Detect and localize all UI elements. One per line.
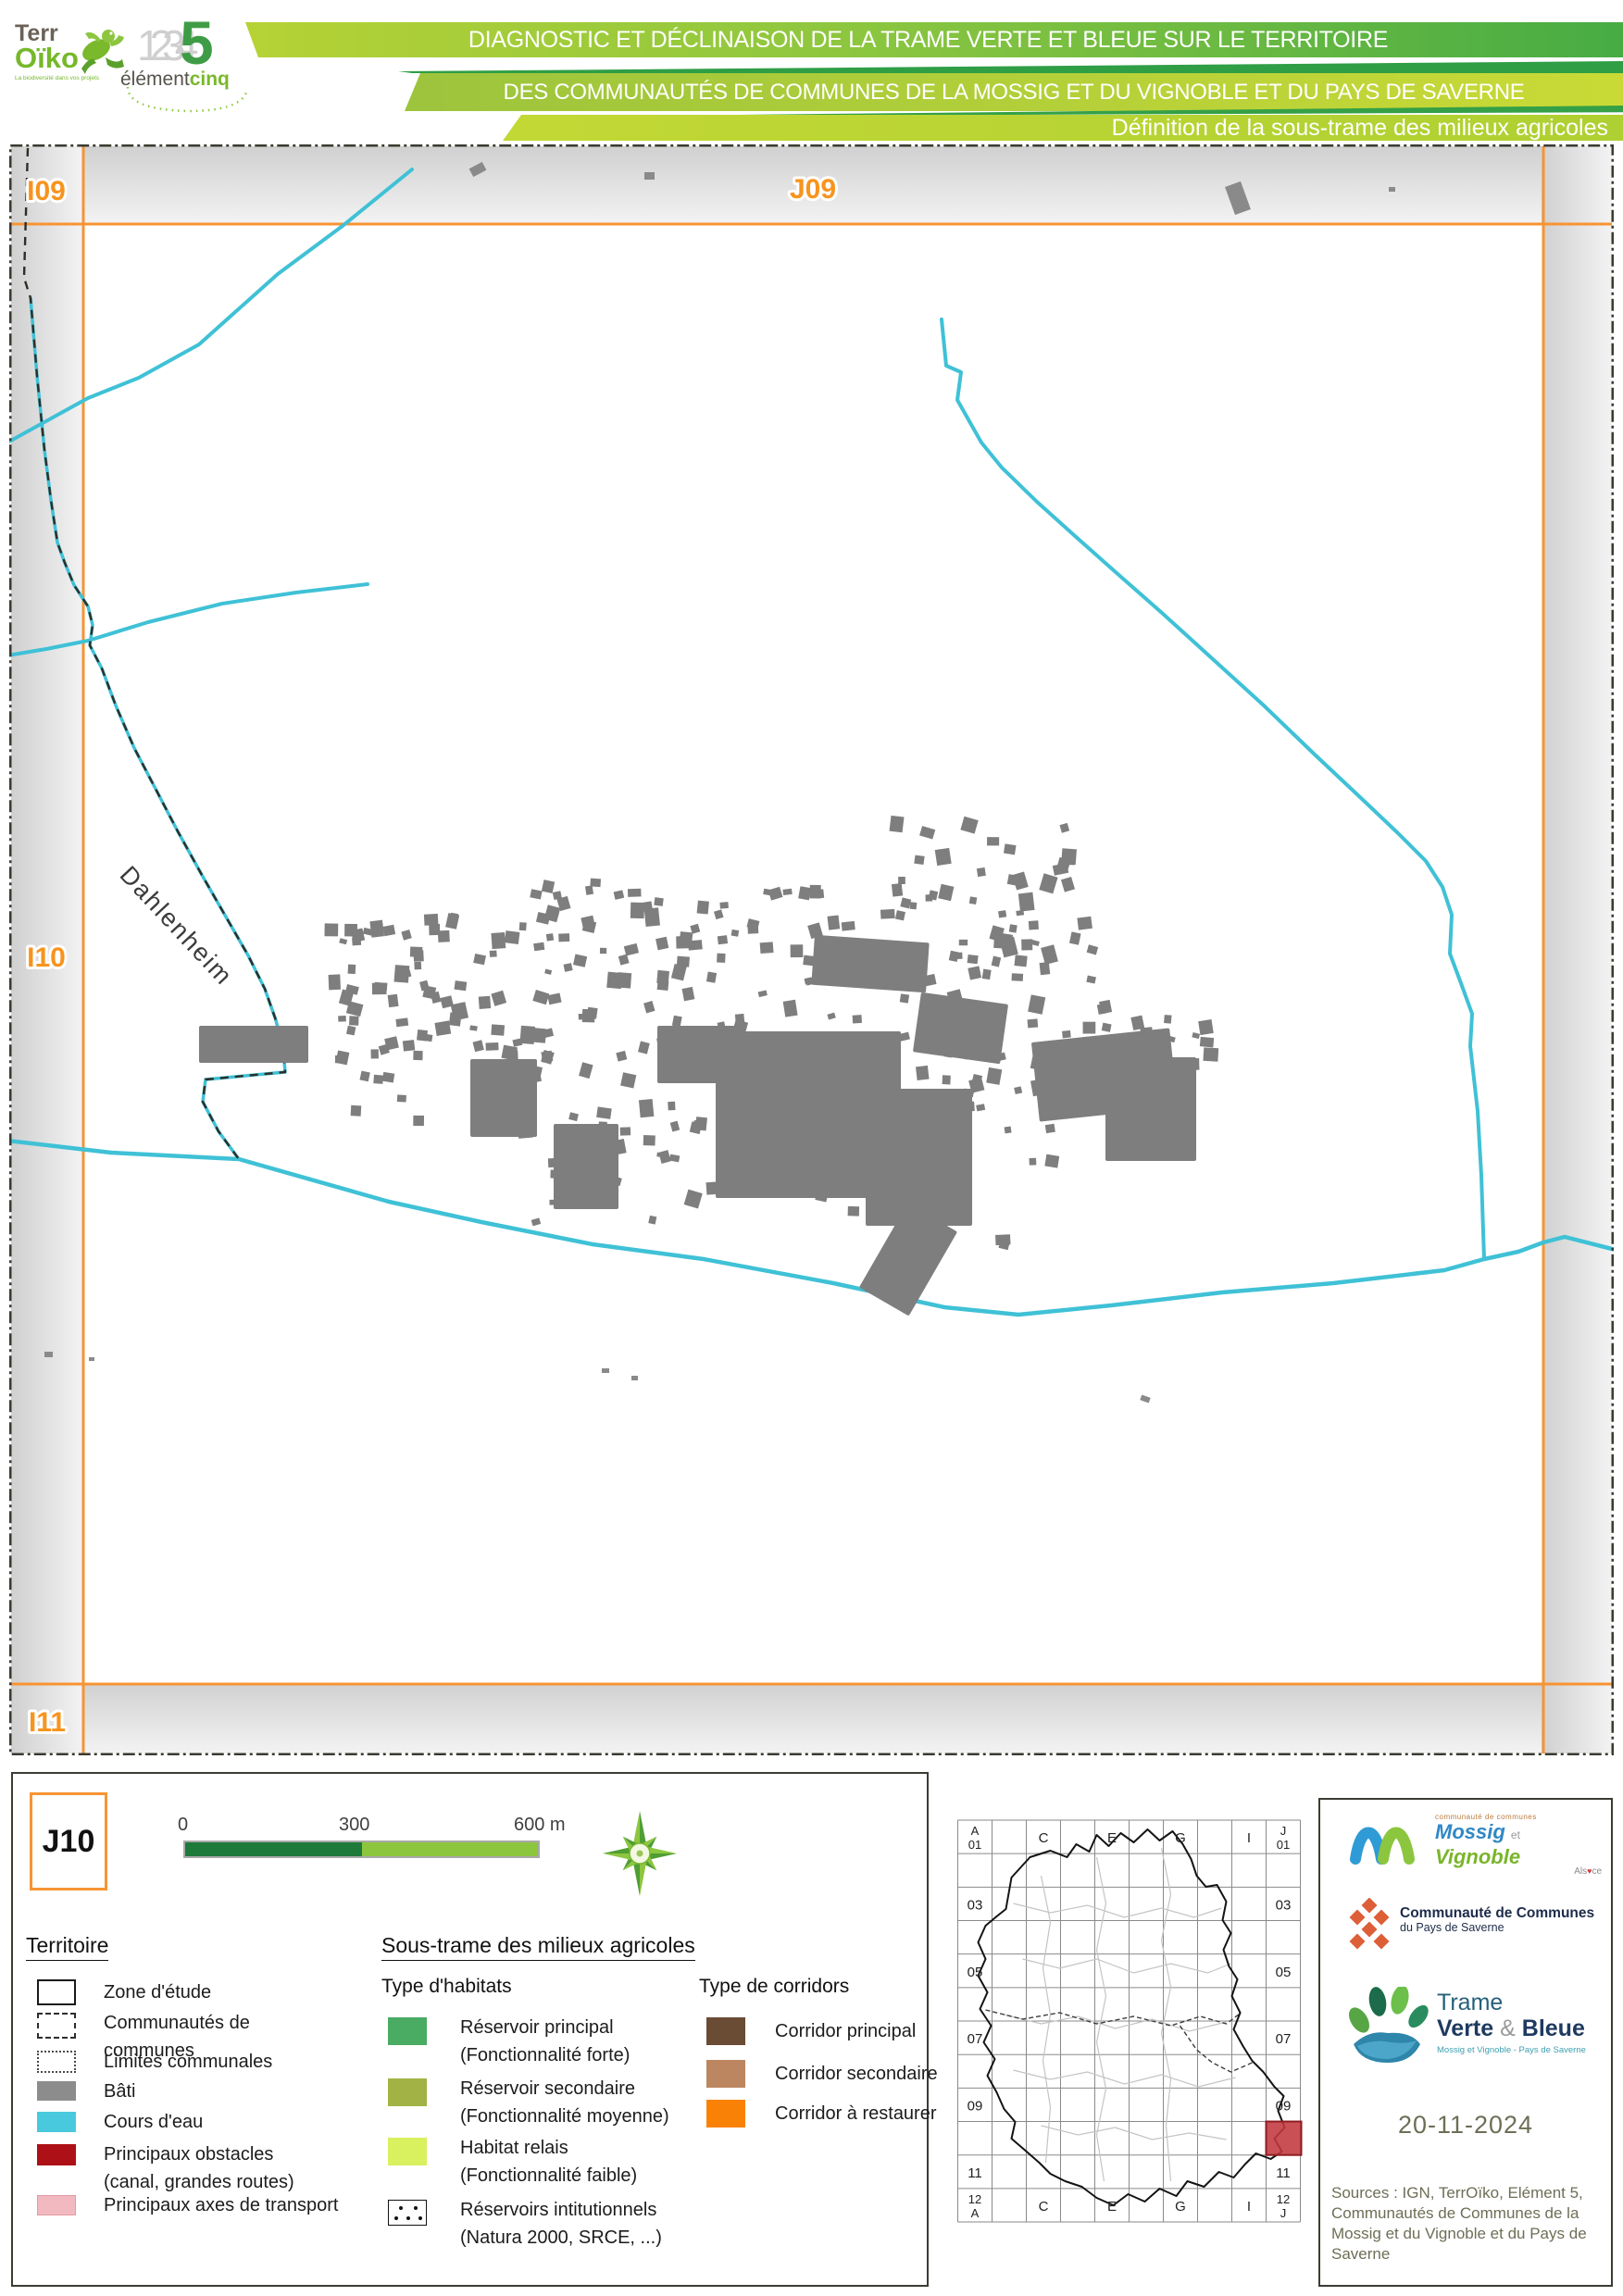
svg-text:J: J (1280, 1824, 1287, 1838)
scale-label-600: 600 m (514, 1815, 566, 1836)
svg-text:G: G (1175, 2199, 1186, 2215)
legend-swatch (37, 1979, 76, 2005)
mossig-name: Mossig et Vignoble (1435, 1821, 1602, 1868)
scale-bar-dark-half (185, 1842, 362, 1856)
legend-label: Limites communales (104, 2048, 272, 2076)
legend-swatch (37, 2144, 76, 2165)
legend-label: Réservoir secondaire(Fonctionnalité moye… (460, 2075, 669, 2130)
legend-label: Corridor principal (775, 2017, 916, 2045)
legend-swatch (37, 2013, 76, 2039)
svg-text:11: 11 (1276, 2165, 1291, 2181)
svg-text:E: E (1107, 2199, 1117, 2215)
svg-text:A: A (971, 1824, 980, 1838)
legend-label: Corridor secondaire (775, 2060, 938, 2088)
compass-rose-icon (589, 1798, 691, 1915)
legend-swatch (37, 2051, 76, 2073)
legend-label: Bâti (104, 2078, 135, 2105)
svg-text:07: 07 (1276, 2031, 1292, 2047)
svg-text:09: 09 (968, 2098, 983, 2114)
svg-text:01: 01 (1277, 1838, 1290, 1852)
svg-text:12: 12 (1277, 2192, 1290, 2206)
tvb-name-line2: Verte & Bleue (1437, 2015, 1586, 2041)
credits-panel: communauté de communes Mossig et Vignobl… (1318, 1798, 1613, 2287)
legend-swatch (388, 2078, 427, 2106)
legend-swatch (388, 2017, 427, 2045)
svg-text:05: 05 (968, 1965, 983, 1980)
tvb-tagline: Mossig et Vignoble - Pays de Saverne (1437, 2045, 1586, 2055)
dot (399, 2206, 403, 2210)
overview-grid-map: A01J0112A12JCEGICEGI03050709110305070911 (956, 1819, 1305, 2223)
svg-text:09: 09 (1276, 2098, 1292, 2114)
habitats-subheading: Type d'habitats (381, 1976, 512, 1998)
svg-text:03: 03 (968, 1897, 983, 1913)
svg-text:J09: J09 (790, 174, 836, 205)
sheet-reference-tile: J10 (30, 1792, 107, 1890)
territoire-heading: Territoire (26, 1933, 108, 1961)
svg-text:C: C (1039, 1830, 1049, 1846)
title-band-1: DIAGNOSTIC ET DÉCLINAISON DE LA TRAME VE… (233, 22, 1623, 57)
publication-date: 20-11-2024 (1320, 2111, 1611, 2140)
saverne-name: Communauté de Communes (1400, 1905, 1594, 1921)
svg-text:J: J (1280, 2206, 1287, 2220)
subtitle-band: Définition de la sous-trame des milieux … (503, 115, 1623, 141)
legend-label: Corridor à restaurer (775, 2100, 937, 2128)
legend-label: Principaux axes de transport (104, 2191, 338, 2219)
mossig-m-icon (1346, 1813, 1431, 1866)
scale-bar-light-half (362, 1842, 539, 1856)
scale-label-300: 300 (339, 1815, 369, 1836)
legend-label: Réservoirs intitutionnels(Natura 2000, S… (460, 2196, 662, 2252)
title-band-2: DES COMMUNAUTÉS DE COMMUNES DE LA MOSSIG… (405, 73, 1623, 111)
svg-text:A: A (971, 2206, 980, 2220)
svg-text:I: I (1247, 2199, 1251, 2215)
scale-label-0: 0 (178, 1815, 188, 1836)
element5-wordmark: élémentcinq (120, 69, 230, 91)
legend-swatch (706, 2017, 745, 2045)
mossig-vignoble-logo: communauté de communes Mossig et Vignobl… (1346, 1813, 1596, 1866)
legend-panel: J10 0 300 600 m Territoire Sous-trame de… (11, 1772, 929, 2287)
legend-swatch (37, 2081, 76, 2101)
legend-label: Habitat relais(Fonctionnalité faible) (460, 2134, 637, 2190)
terroiko-logo: Terr Oïko La biodiversité dans vos proje… (15, 22, 117, 81)
legend-swatch (388, 2138, 427, 2165)
svg-text:I09: I09 (27, 176, 66, 206)
saverne-subname: du Pays de Saverne (1400, 1921, 1594, 1934)
corridors-subheading: Type de corridors (699, 1976, 849, 1998)
legend-label: Zone d'étude (104, 1978, 211, 2006)
dot (418, 2216, 422, 2220)
element5-logo: 1234 5 élémentcinq (120, 15, 259, 126)
legend-swatch (388, 2200, 427, 2226)
map-sheet-page: Terr Oïko La biodiversité dans vos proje… (0, 0, 1623, 2296)
svg-text:I10: I10 (27, 942, 66, 973)
legend-swatch (706, 2100, 745, 2128)
dot (394, 2216, 398, 2220)
legend-swatch (37, 2112, 76, 2132)
legend-swatch (37, 2195, 76, 2215)
scale-bar (183, 1841, 540, 1858)
svg-text:12: 12 (968, 2192, 981, 2206)
tvb-paw-icon (1346, 1987, 1429, 2068)
svg-text:G: G (1175, 1830, 1186, 1846)
band-accent-1 (398, 61, 1623, 73)
svg-text:I11: I11 (29, 1707, 66, 1738)
svg-text:I: I (1247, 1830, 1251, 1846)
legend-label: Réservoir principal(Fonctionnalité forte… (460, 2014, 630, 2069)
saverne-diamonds-icon (1348, 1898, 1392, 1957)
dot (414, 2206, 418, 2210)
legend-swatch (706, 2060, 745, 2088)
sources-text: Sources : IGN, TerrOïko, Elément 5, Comm… (1331, 2183, 1602, 2265)
element5-five: 5 (180, 7, 214, 78)
dot (406, 2216, 410, 2220)
tvb-name-line1: Trame (1437, 1990, 1586, 2015)
legend-label: Principaux obstacles(canal, grandes rout… (104, 2140, 294, 2196)
soustrame-heading: Sous-trame des milieux agricoles (381, 1933, 695, 1961)
svg-text:05: 05 (1276, 1965, 1292, 1980)
svg-text:C: C (1039, 2199, 1049, 2215)
pays-de-saverne-logo: Communauté de Communes du Pays de Savern… (1348, 1898, 1607, 1955)
svg-text:E: E (1107, 1830, 1117, 1846)
svg-text:01: 01 (968, 1838, 981, 1852)
svg-text:03: 03 (1276, 1897, 1292, 1913)
trame-verte-bleue-logo: Trame Verte & Bleue Mossig et Vignoble -… (1346, 1987, 1605, 2072)
legend-label: Cours d'eau (104, 2108, 203, 2136)
main-map: I09J09I10I11Dahlenheim (9, 144, 1614, 1755)
svg-text:07: 07 (968, 2031, 983, 2047)
frog-icon (69, 11, 126, 91)
svg-text:11: 11 (968, 2165, 982, 2181)
